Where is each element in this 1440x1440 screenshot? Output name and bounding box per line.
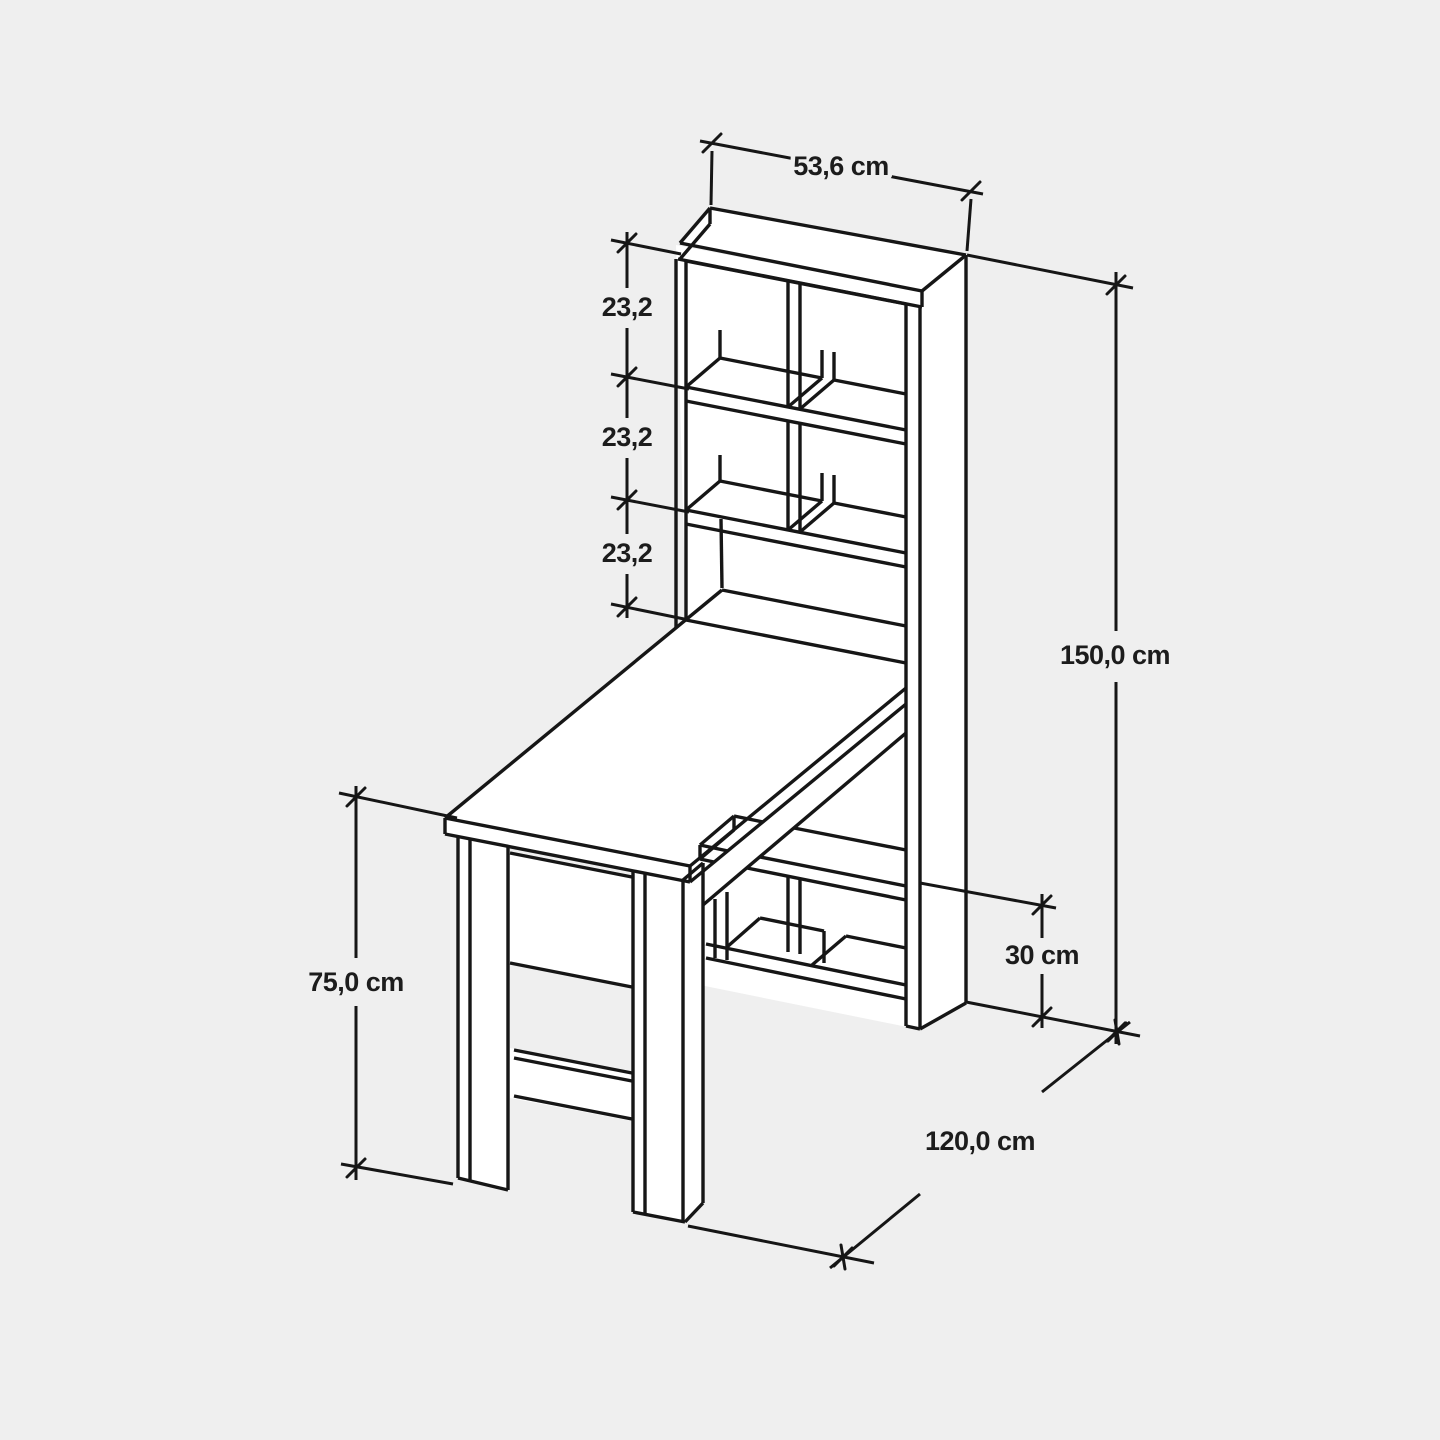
dimension-label-top-width: 53,6 cm: [793, 151, 889, 181]
dimension-label-shelf-gap-3: 23,2: [602, 538, 653, 568]
dimension-label-desk-height: 75,0 cm: [308, 967, 404, 997]
drawing-canvas: 53,6 cm 23,2 23,2 23,2 150,0 cm 30 cm: [0, 0, 1440, 1440]
dimension-label-shelf-gap-1: 23,2: [602, 292, 653, 322]
bookshelf-right-side-face: [920, 255, 966, 1029]
dimension-total-height: 150,0 cm: [967, 255, 1170, 1044]
dimension-label-desk-depth: 120,0 cm: [925, 1126, 1035, 1156]
dimension-label-bottom-cubby-height: 30 cm: [1005, 940, 1079, 970]
panel-fills: [445, 208, 966, 1222]
dimension-desk-depth: 120,0 cm: [688, 1020, 1130, 1269]
furniture-technical-drawing: 53,6 cm 23,2 23,2 23,2 150,0 cm 30 cm: [0, 0, 1440, 1440]
dimension-label-shelf-gap-2: 23,2: [602, 422, 653, 452]
stretcher-panel: [510, 1048, 632, 1121]
dimension-label-total-height: 150,0 cm: [1060, 640, 1170, 670]
dimension-desk-height: 75,0 cm: [308, 786, 457, 1184]
left-leg-panel: [458, 836, 508, 1190]
